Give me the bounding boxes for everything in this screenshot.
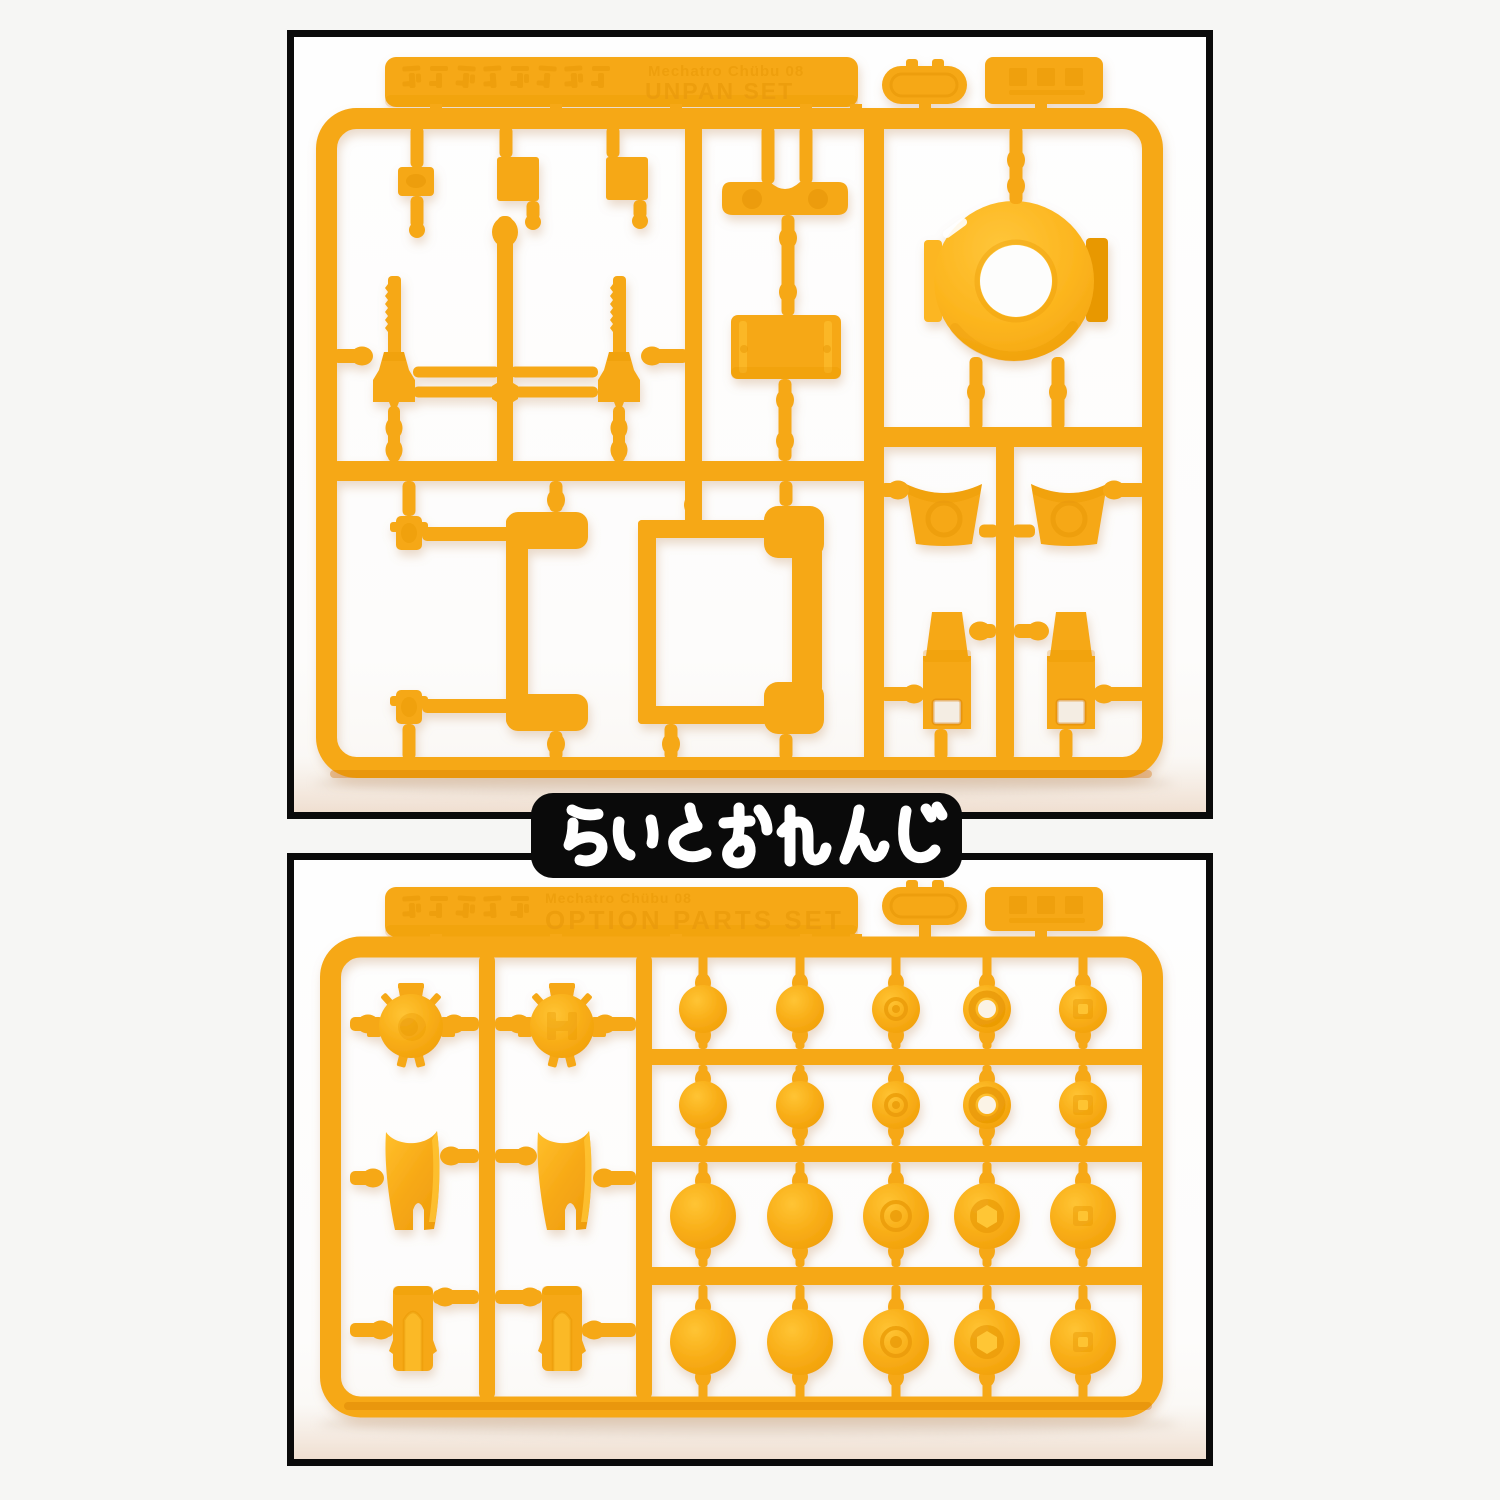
svg-text:UNPAN SET: UNPAN SET [645, 78, 794, 104]
svg-text:Mechatro Chübu 08: Mechatro Chübu 08 [545, 890, 692, 906]
svg-text:OPTION PARTS SET: OPTION PARTS SET [545, 905, 844, 935]
